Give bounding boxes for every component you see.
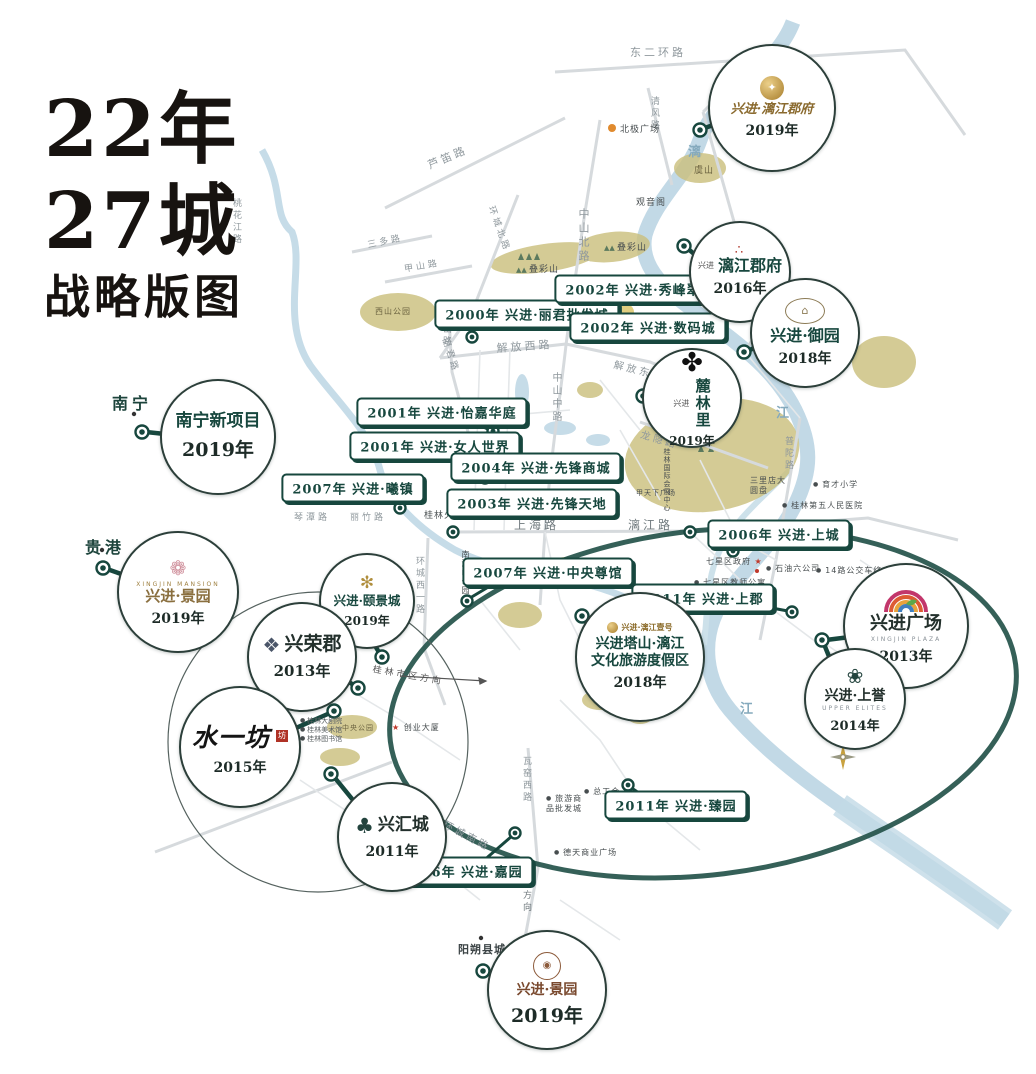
red-seal-icon: 坊 xyxy=(276,730,288,742)
rosette-icon: ❁ xyxy=(170,556,187,580)
project-year: 2018年 xyxy=(779,348,832,368)
project-badge-lulinli: ✤ 兴进 麓林里 2019年 xyxy=(642,348,742,448)
project-tag-zhongyang: 2007年 兴进·中央尊馆 xyxy=(462,558,633,587)
project-badge-xinghuicheng: ♣ 兴汇城 2011年 xyxy=(337,782,447,892)
title-line-3: 战略版图 xyxy=(44,268,244,328)
poi-label: 桂林第五人民医院 xyxy=(782,500,863,511)
poi-label: 石油六公司 xyxy=(766,563,820,574)
brand-name: 兴进·漓江壹号 xyxy=(621,622,672,633)
project-name-line2: 文化旅游度假区 xyxy=(591,653,689,669)
project-year: 2015年 xyxy=(214,757,267,777)
project-name: 水一坊 xyxy=(192,718,270,754)
poi-label: 叠彩山 xyxy=(604,240,647,253)
river-label-jiang: 江 xyxy=(776,402,789,421)
red-dots-icon: ∴ xyxy=(735,246,745,256)
poi-label: 七星区政府 xyxy=(706,556,763,567)
road-label: 漓江路 xyxy=(628,516,673,533)
project-badge-yuyuan: ⌂ 兴进·御园 2018年 xyxy=(750,278,860,388)
poi-label: 德天商业广场 xyxy=(554,847,617,858)
brand-prefix: 兴进 xyxy=(673,398,689,409)
rainbow-logo-icon xyxy=(882,586,930,614)
poi-label: 北极广场 xyxy=(620,122,660,135)
road-label: 中山中路 xyxy=(548,372,563,424)
project-name: 漓江郡府 xyxy=(718,257,782,275)
poi-label: 甲天下广场 xyxy=(636,488,676,498)
project-badge-nanning-new: 南宁新项目 2019年 xyxy=(160,379,276,495)
poi-label: 西山公园 xyxy=(375,306,411,317)
poi-label: 桂林国际会展中心 xyxy=(662,448,672,512)
project-year: 2016年 xyxy=(714,278,767,298)
road-label: 普陀路 xyxy=(782,436,795,472)
project-badge-jingyuan-guigang: ❁ XINGJIN MANSION 兴进·景园 2019年 xyxy=(117,531,239,653)
project-name: 兴进广场 xyxy=(870,614,942,635)
project-tag-zhenyuan: 2011年 兴进·臻园 xyxy=(604,791,747,820)
project-name: 兴进·漓江郡府 xyxy=(731,103,814,118)
project-name: 兴汇城 xyxy=(378,816,429,836)
project-year: 2019年 xyxy=(152,608,205,628)
road-label: 环城西一路 xyxy=(413,556,426,616)
project-name: 兴进·颐景城 xyxy=(334,594,401,608)
project-year: 2019年 xyxy=(511,1001,583,1028)
city-label-nanning: 南宁 xyxy=(112,390,152,414)
poi-label: 育才小学 xyxy=(813,479,858,490)
beiji-square-dot xyxy=(608,124,616,132)
river-label-jiang: 江 xyxy=(740,698,753,717)
road-label: 东二环路 xyxy=(630,44,686,60)
project-tag-xianfeng-mall: 2004年 兴进·先锋商城 xyxy=(450,453,621,482)
project-year: 2019年 xyxy=(746,120,799,140)
project-name: 兴进·景园 xyxy=(145,588,210,605)
project-badge-lijiang-junfu-2019: ✦ 兴进·漓江郡府 2019年 xyxy=(708,44,836,172)
project-badge-jingyuan-yangshuo: ◉ 兴进·景园 2019年 xyxy=(487,930,607,1050)
clover-icon: ✤ xyxy=(681,348,703,378)
title-line-2: 27城 xyxy=(44,176,244,268)
poi-label: 中央公园 xyxy=(342,723,374,733)
sketch-ring-icon: ◉ xyxy=(533,952,561,980)
project-tag-yijia: 2001年 兴进·怡嘉华庭 xyxy=(356,398,527,427)
emblem-icon: ❖ xyxy=(263,633,281,657)
project-name: 南宁新项目 xyxy=(176,412,261,432)
brand-prefix: 兴进 xyxy=(698,260,714,271)
poi-label: 观音阁 xyxy=(636,195,666,208)
project-year: 2019年 xyxy=(344,612,389,629)
project-year: 2019年 xyxy=(669,432,714,449)
gold-dot-icon xyxy=(607,622,618,633)
project-name-en: XINGJIN PLAZA xyxy=(871,636,941,643)
project-year: 2019年 xyxy=(182,435,254,462)
project-name: 兴进·景园 xyxy=(517,982,578,998)
poi-label: 虞山 xyxy=(694,163,714,176)
road-label: 琴潭路 xyxy=(294,510,330,523)
city-label-guigang: 贵港 xyxy=(85,534,125,558)
sketch-oval-icon: ⌂ xyxy=(785,298,825,324)
project-name: 兴荣郡 xyxy=(284,634,341,656)
project-name: 麓林里 xyxy=(693,378,710,429)
project-tag-shumacheng: 2002年 兴进·数码城 xyxy=(569,313,726,342)
strategic-map-poster: 22年 27城 战略版图 南宁 贵港 阳朔县城 东二环路 清风路 芦笛路 环城北… xyxy=(0,0,1036,1074)
gold-flower-icon: ✻ xyxy=(360,573,374,593)
project-name-en: UPPER ELITES xyxy=(822,705,888,712)
project-tag-xianfeng-land: 2003年 兴进·先锋天地 xyxy=(446,489,617,518)
project-year: 2011年 xyxy=(366,841,419,861)
li-river-lower-wide xyxy=(840,805,1005,920)
project-name: 兴进·御园 xyxy=(770,327,840,345)
poi-label: 叠彩山 xyxy=(516,262,559,275)
lotus-icon: ❀ xyxy=(847,664,864,688)
road-label: 上海路 xyxy=(514,516,559,533)
project-tag-xizhen: 2007年 兴进·曦镇 xyxy=(281,474,424,503)
project-year: 2014年 xyxy=(830,715,879,734)
poi-label: 旅游商品批发城 xyxy=(546,794,590,814)
project-year: 2018年 xyxy=(614,672,667,692)
road-label: 瓦窑西路 xyxy=(520,756,533,804)
project-tag-shangcheng: 2006年 兴进·上城 xyxy=(707,520,850,549)
title-line-1: 22年 xyxy=(44,84,244,176)
lake xyxy=(586,434,610,446)
road-label: 丽竹路 xyxy=(350,510,386,523)
poi-label: 创业大厦 xyxy=(392,722,440,733)
poster-title: 22年 27城 战略版图 xyxy=(44,84,244,328)
poi-label: 三里店大圆盘 xyxy=(750,476,794,496)
road-label: 中山北路 xyxy=(575,208,591,264)
project-name: 兴进·上誉 xyxy=(825,688,886,704)
project-badge-tashan-resort: 兴进·漓江壹号 兴进塔山·漓江 文化旅游度假区 2018年 xyxy=(575,592,705,722)
project-name-line1: 兴进塔山·漓江 xyxy=(596,636,685,652)
gold-seal-icon: ✦ xyxy=(760,76,784,100)
poi-label: 桂林图书馆 xyxy=(300,734,342,744)
project-year: 2013年 xyxy=(274,660,331,681)
tree-icon: ♣ xyxy=(355,814,374,838)
river-label-li: 漓 xyxy=(688,141,701,160)
project-badge-shangyu: ❀ 兴进·上誉 UPPER ELITES 2014年 xyxy=(804,648,906,750)
project-badge-shuiyifang: 水一坊 坊 2015年 xyxy=(179,686,301,808)
